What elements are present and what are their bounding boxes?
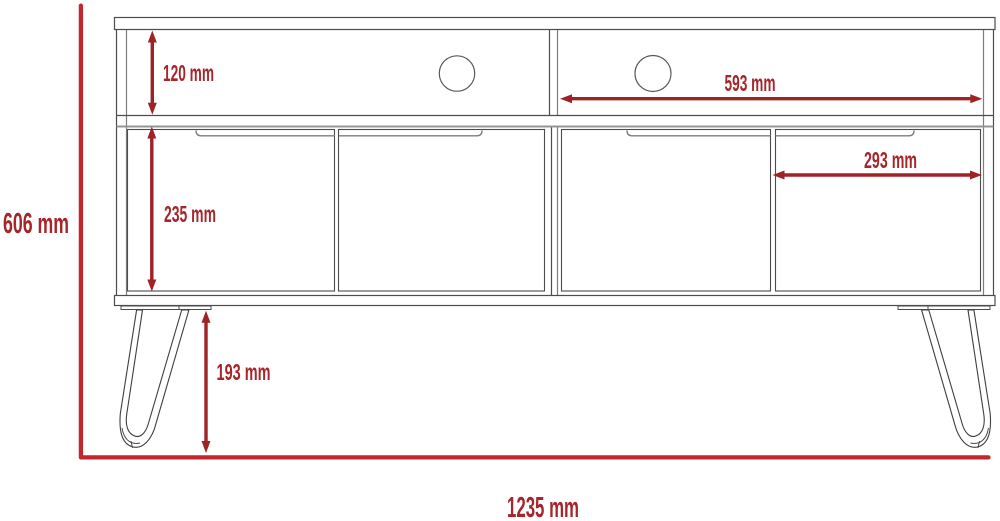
- svg-text:293 mm: 293 mm: [864, 147, 917, 173]
- svg-text:193 mm: 193 mm: [217, 359, 271, 385]
- svg-text:1235 mm: 1235 mm: [507, 492, 579, 521]
- svg-text:593 mm: 593 mm: [725, 70, 776, 96]
- svg-text:235 mm: 235 mm: [164, 201, 216, 227]
- svg-text:120 mm: 120 mm: [163, 60, 214, 86]
- svg-text:606 mm: 606 mm: [3, 208, 69, 240]
